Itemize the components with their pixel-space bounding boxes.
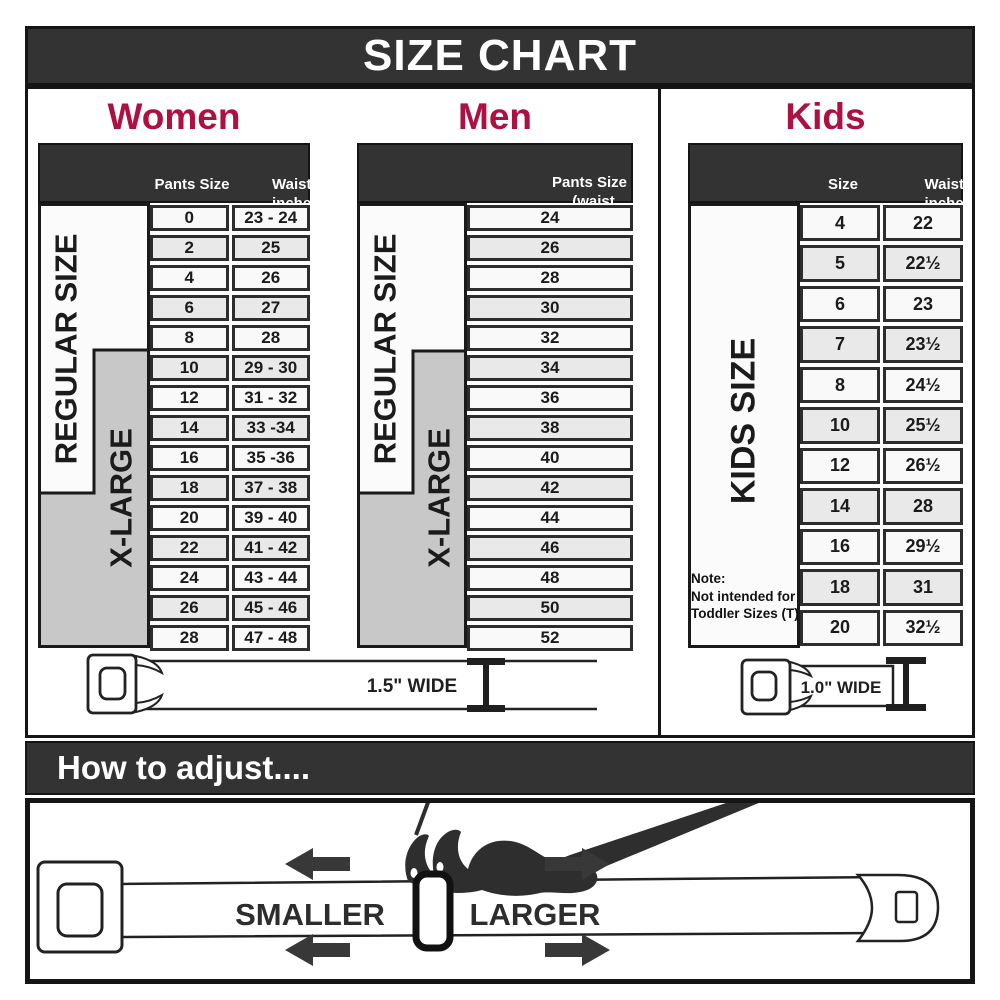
table-row: 828 — [150, 323, 310, 353]
table-cell: 18 — [150, 475, 229, 501]
table-row: 023 - 24 — [150, 203, 310, 233]
table-cell: 45 - 46 — [232, 595, 311, 621]
table-row: 824½ — [800, 365, 963, 405]
table-cell: 40 — [467, 445, 633, 471]
kids-heading: Kids — [688, 96, 963, 138]
kids-note-line1: Note: — [691, 571, 726, 586]
table-cell: 16 — [800, 529, 880, 565]
table-row: 2443 - 44 — [150, 563, 310, 593]
table-cell: 32 — [467, 325, 633, 351]
table-cell: 33 -34 — [232, 415, 311, 441]
table-cell: 23 — [883, 286, 963, 322]
women-size-group-labels: REGULAR SIZE X-LARGE — [38, 203, 150, 648]
table-cell: 23 - 24 — [232, 205, 311, 231]
women-regular-size-label: REGULAR SIZE — [49, 234, 84, 465]
table-cell: 27 — [232, 295, 311, 321]
table-row: 48 — [467, 563, 633, 593]
women-heading: Women — [38, 96, 310, 138]
table-cell: 42 — [467, 475, 633, 501]
arrow-left-icon — [285, 848, 350, 880]
women-xlarge-label: X-LARGE — [104, 428, 139, 568]
table-cell: 0 — [150, 205, 229, 231]
adult-width-ibeam — [483, 661, 489, 709]
table-row: 1831 — [800, 567, 963, 607]
table-cell: 24 — [467, 205, 633, 231]
table-row: 1029 - 30 — [150, 353, 310, 383]
table-row: 723½ — [800, 324, 963, 364]
table-row: 627 — [150, 293, 310, 323]
table-cell: 16 — [150, 445, 229, 471]
table-cell: 43 - 44 — [232, 565, 311, 591]
kids-col-waist: Waistinches — [884, 176, 965, 195]
table-cell: 25 — [232, 235, 311, 261]
women-col-waist: Waistinches — [232, 176, 312, 195]
men-regular-size-label: REGULAR SIZE — [368, 234, 403, 465]
table-row: 36 — [467, 383, 633, 413]
title-bar: SIZE CHART — [25, 26, 975, 86]
table-row: 1629½ — [800, 527, 963, 567]
table-row: 46 — [467, 533, 633, 563]
table-cell: 31 - 32 — [232, 385, 311, 411]
table-cell: 26 — [232, 265, 311, 291]
table-cell: 12 — [800, 448, 880, 484]
table-cell: 28 — [883, 488, 963, 524]
table-cell: 14 — [150, 415, 229, 441]
table-cell: 28 — [150, 625, 229, 651]
table-cell: 6 — [150, 295, 229, 321]
table-cell: 37 - 38 — [232, 475, 311, 501]
table-cell: 36 — [467, 385, 633, 411]
table-row: 42 — [467, 473, 633, 503]
table-cell: 24 — [150, 565, 229, 591]
table-cell: 20 — [150, 505, 229, 531]
table-row: 1837 - 38 — [150, 473, 310, 503]
table-row: 24 — [467, 203, 633, 233]
men-col-pants-size: Pants Size(waist inches) — [469, 174, 635, 193]
table-cell: 28 — [467, 265, 633, 291]
table-cell: 44 — [467, 505, 633, 531]
arrow-left-icon — [285, 934, 350, 966]
table-cell: 46 — [467, 535, 633, 561]
adult-ibeam-bottom-cap — [467, 705, 505, 712]
table-row: 50 — [467, 593, 633, 623]
table-cell: 24½ — [883, 367, 963, 403]
size-chart-page: SIZE CHART Women Men Kids Pants Size Wai… — [0, 0, 1000, 1000]
table-row: 1433 -34 — [150, 413, 310, 443]
table-cell: 22 — [883, 205, 963, 241]
kids-buckle-button — [752, 672, 776, 700]
kids-note: Note: Not intended for Toddler Sizes (T) — [691, 570, 801, 623]
women-size-table: 023 - 242254266278281029 - 301231 - 3214… — [150, 203, 310, 648]
adult-buckle-button — [100, 668, 125, 699]
table-row: 522½ — [800, 243, 963, 283]
table-row: 1635 -36 — [150, 443, 310, 473]
table-cell: 18 — [800, 569, 880, 605]
table-cell: 26 — [150, 595, 229, 621]
men-size-group-labels: REGULAR SIZE X-LARGE — [357, 203, 467, 648]
women-col-pants-size: Pants Size — [142, 176, 242, 195]
table-row: 623 — [800, 284, 963, 324]
adult-belt-width-label: 1.5" WIDE — [367, 676, 457, 697]
men-table-header: Pants Size(waist inches) — [357, 143, 633, 203]
table-cell: 26 — [467, 235, 633, 261]
arrow-right-icon — [545, 934, 610, 966]
table-row: 1428 — [800, 486, 963, 526]
kids-ibeam-top-cap — [886, 657, 926, 664]
table-cell: 28 — [232, 325, 311, 351]
table-row: 2847 - 48 — [150, 623, 310, 653]
table-cell: 20 — [800, 610, 880, 646]
table-row: 2039 - 40 — [150, 503, 310, 533]
table-cell: 5 — [800, 245, 880, 281]
kids-size-label: KIDS SIZE — [725, 338, 764, 504]
adult-strap-wing-top — [136, 656, 162, 673]
how-to-adjust-bar: How to adjust.... — [25, 741, 975, 795]
page-title: SIZE CHART — [28, 29, 972, 83]
kids-belt-width-illustration: 1.0" WIDE — [735, 652, 965, 716]
kids-table-header: Size Waistinches — [688, 143, 963, 203]
table-cell: 22 — [150, 535, 229, 561]
how-to-adjust-title: How to adjust.... — [27, 743, 973, 793]
table-cell: 4 — [150, 265, 229, 291]
belt-slider-adjuster — [416, 874, 450, 948]
table-row: 422 — [800, 203, 963, 243]
table-cell: 25½ — [883, 407, 963, 443]
table-row: 52 — [467, 623, 633, 653]
table-row: 32 — [467, 323, 633, 353]
men-xlarge-label: X-LARGE — [422, 428, 457, 568]
adult-ibeam-top-cap — [467, 658, 505, 665]
kids-note-line2: Not intended for — [691, 589, 795, 604]
table-cell: 23½ — [883, 326, 963, 362]
table-cell: 6 — [800, 286, 880, 322]
table-row: 1231 - 32 — [150, 383, 310, 413]
table-row: 1226½ — [800, 446, 963, 486]
men-size-table: 242628303234363840424446485052 — [467, 203, 633, 648]
kids-size-table: 422522½623723½824½1025½1226½14281629½183… — [800, 203, 963, 648]
kids-ibeam-bottom-cap — [886, 704, 926, 711]
kids-width-ibeam — [903, 661, 909, 709]
table-cell: 30 — [467, 295, 633, 321]
table-cell: 8 — [800, 367, 880, 403]
table-cell: 4 — [800, 205, 880, 241]
adjust-illustration: SMALLER LARGER — [30, 803, 970, 979]
table-cell: 35 -36 — [232, 445, 311, 471]
table-cell: 52 — [467, 625, 633, 651]
table-row: 34 — [467, 353, 633, 383]
adjust-buckle-button — [58, 884, 102, 936]
table-cell: 14 — [800, 488, 880, 524]
table-cell: 41 - 42 — [232, 535, 311, 561]
table-cell: 47 - 48 — [232, 625, 311, 651]
table-row: 2645 - 46 — [150, 593, 310, 623]
table-cell: 10 — [150, 355, 229, 381]
table-row: 225 — [150, 233, 310, 263]
table-row: 44 — [467, 503, 633, 533]
table-cell: 32½ — [883, 610, 963, 646]
section-divider — [658, 86, 661, 738]
table-cell: 38 — [467, 415, 633, 441]
larger-label: LARGER — [470, 897, 601, 932]
table-row: 30 — [467, 293, 633, 323]
table-cell: 2 — [150, 235, 229, 261]
smaller-label: SMALLER — [235, 897, 385, 932]
kids-col-size: Size — [802, 176, 884, 195]
table-cell: 39 - 40 — [232, 505, 311, 531]
women-col-waist-line1: Waist — [272, 176, 311, 195]
belt-end-tab-slot — [896, 892, 917, 922]
table-cell: 31 — [883, 569, 963, 605]
table-row: 26 — [467, 233, 633, 263]
table-cell: 34 — [467, 355, 633, 381]
table-cell: 26½ — [883, 448, 963, 484]
kids-col-waist-line1: Waist — [925, 176, 964, 195]
table-row: 38 — [467, 413, 633, 443]
table-row: 426 — [150, 263, 310, 293]
kids-belt-width-label: 1.0" WIDE — [801, 678, 882, 697]
table-row: 1025½ — [800, 405, 963, 445]
table-cell: 50 — [467, 595, 633, 621]
kids-note-line3: Toddler Sizes (T) — [691, 606, 799, 621]
table-row: 2241 - 42 — [150, 533, 310, 563]
table-cell: 12 — [150, 385, 229, 411]
adult-belt-width-illustration: 1.5" WIDE — [80, 652, 650, 716]
table-cell: 29 - 30 — [232, 355, 311, 381]
women-table-header: Pants Size Waistinches — [38, 143, 310, 203]
men-col-line1: Pants Size — [552, 174, 627, 193]
men-heading: Men — [357, 96, 633, 138]
table-cell: 8 — [150, 325, 229, 351]
table-row: 28 — [467, 263, 633, 293]
table-cell: 48 — [467, 565, 633, 591]
table-cell: 7 — [800, 326, 880, 362]
table-cell: 22½ — [883, 245, 963, 281]
table-cell: 29½ — [883, 529, 963, 565]
strap-tip-line — [416, 803, 430, 835]
table-cell: 10 — [800, 407, 880, 443]
table-row: 2032½ — [800, 608, 963, 648]
table-row: 40 — [467, 443, 633, 473]
